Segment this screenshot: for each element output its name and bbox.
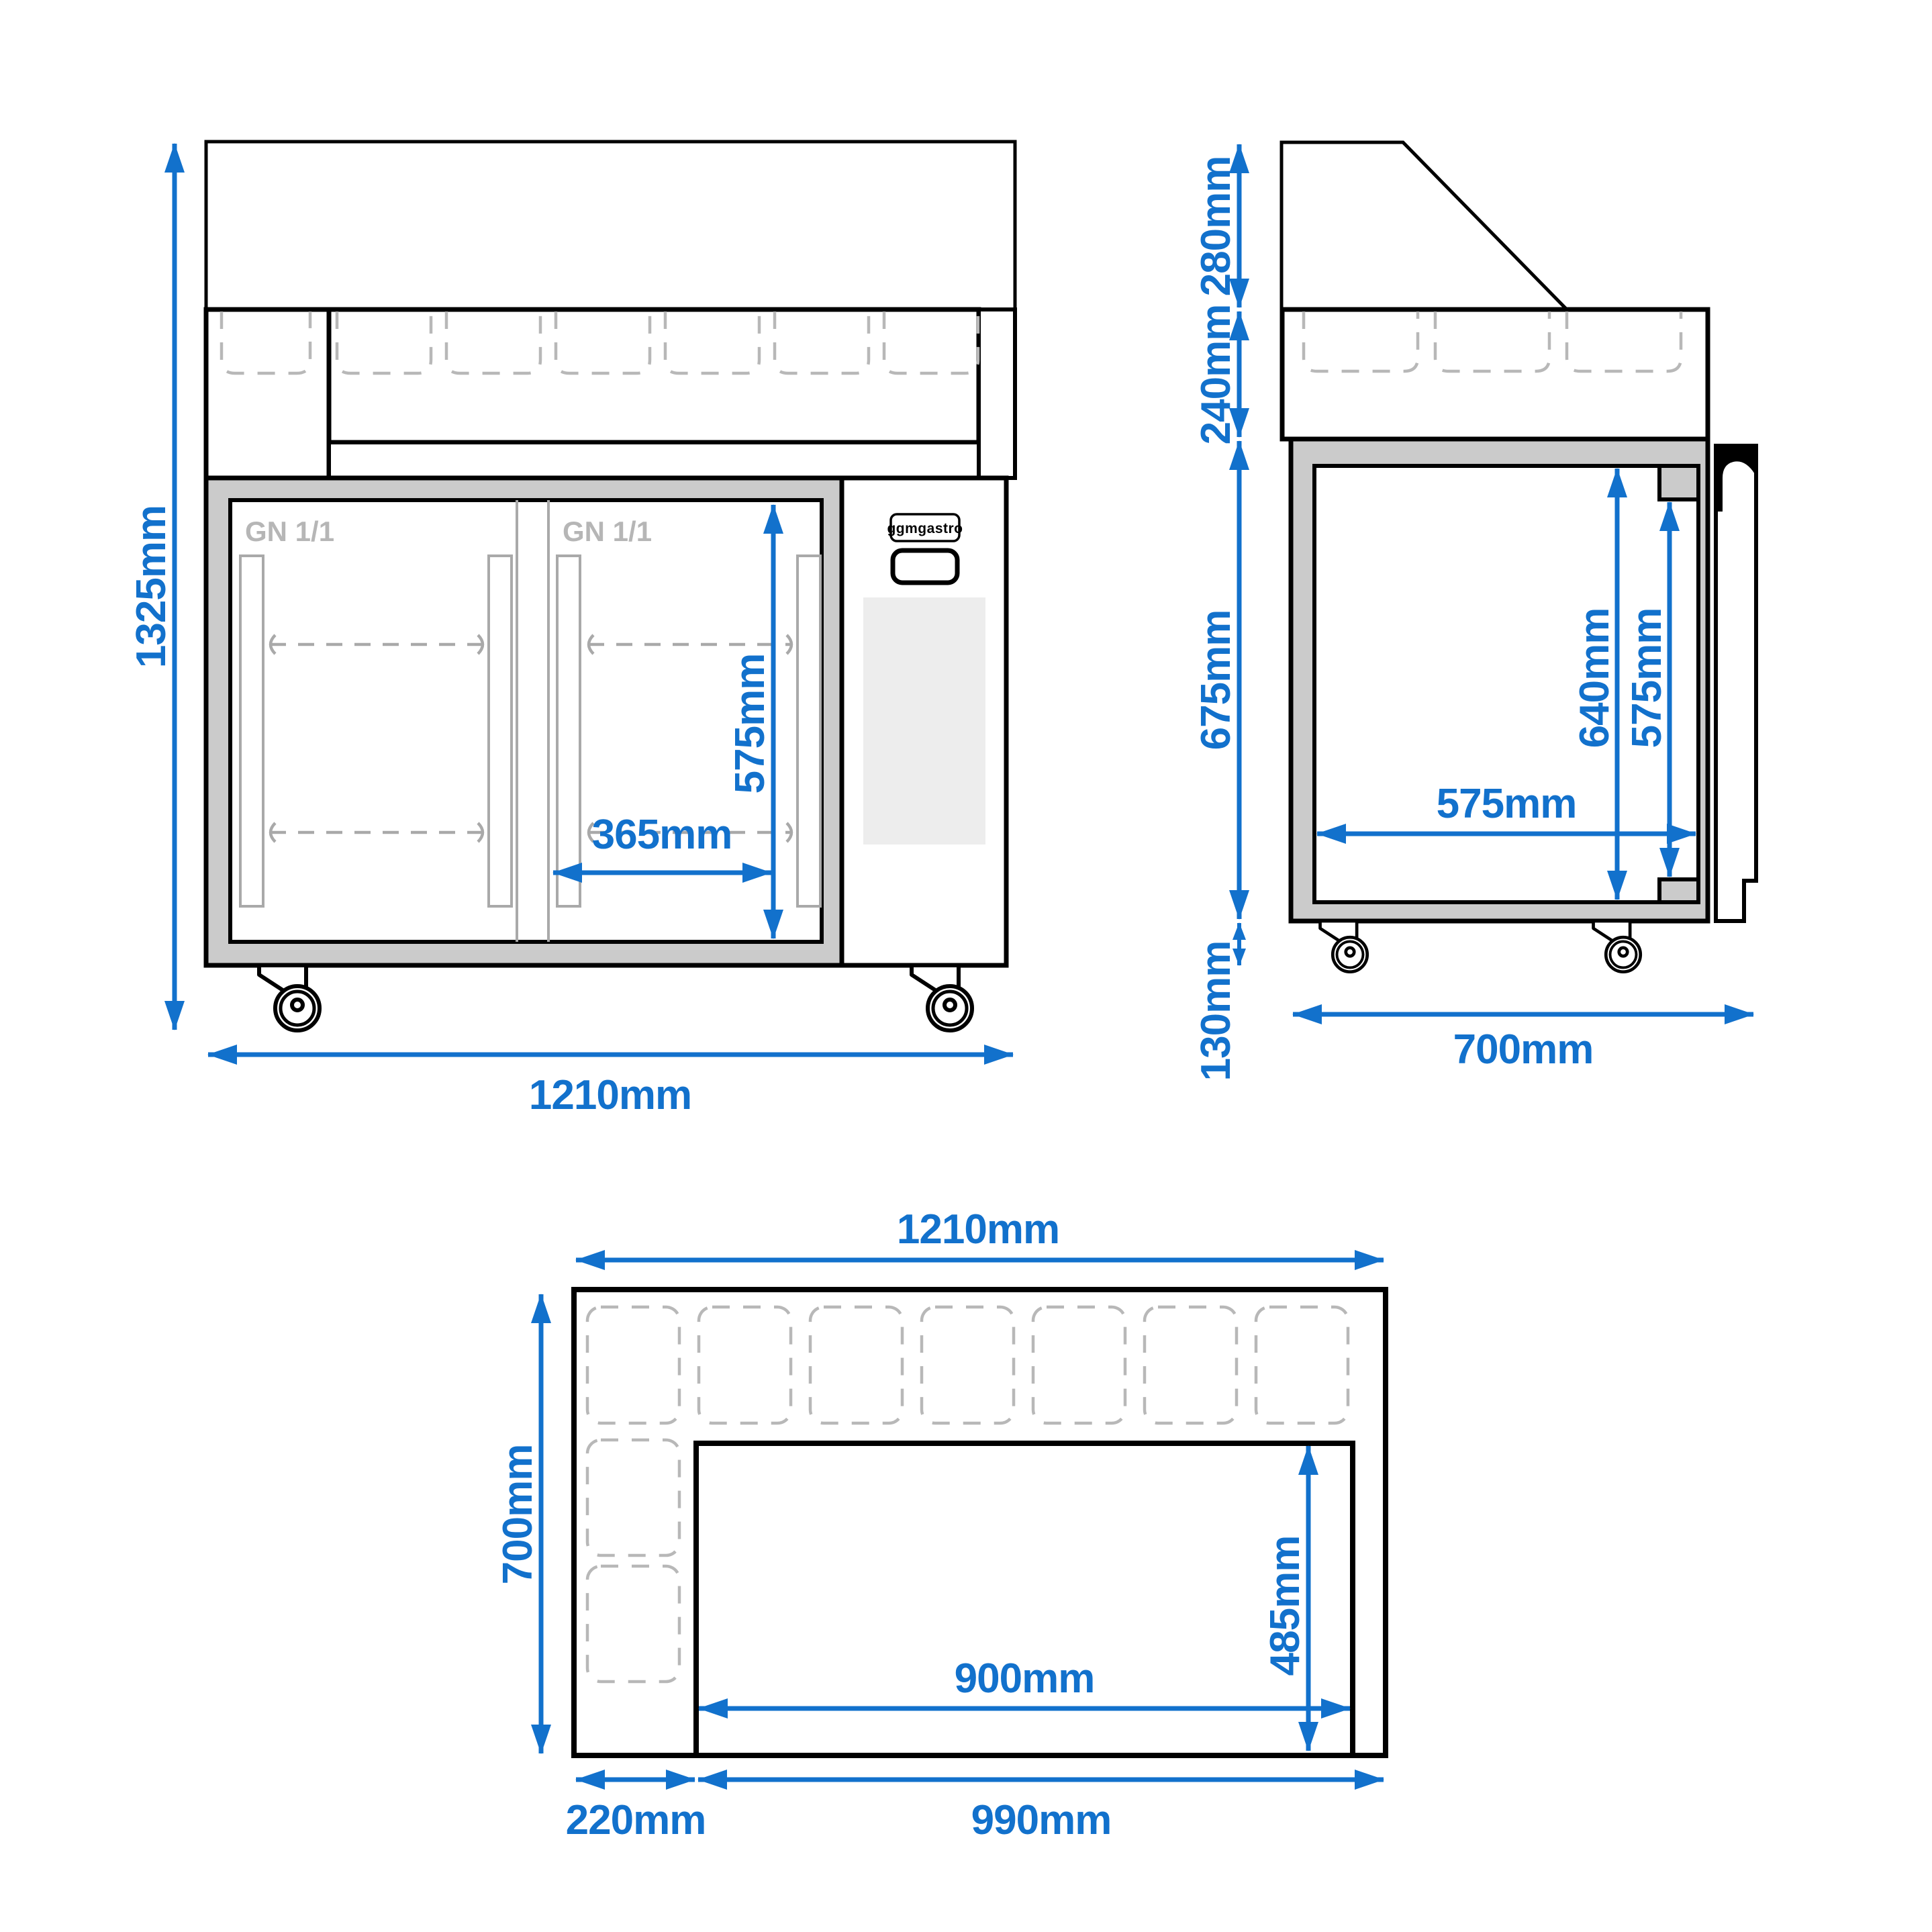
top-view: 1210mm 700mm 485mm 900mm 220mm 990mm	[495, 1206, 1386, 1843]
svg-text:700mm: 700mm	[1453, 1026, 1594, 1073]
side-gn-well-box	[1282, 309, 1708, 439]
side-ceiling-step	[1659, 466, 1698, 499]
ventilation-grille	[863, 597, 985, 844]
brand-logo-text: ggmgastro	[887, 521, 963, 536]
gn-size-label-left-door: GN 1/1	[245, 516, 334, 547]
svg-text:280mm: 280mm	[1193, 156, 1239, 297]
svg-text:1325mm: 1325mm	[128, 505, 175, 668]
svg-text:675mm: 675mm	[1193, 610, 1239, 751]
side-view: 280mm 240mm 675mm 130mm 700mm 640mm 575m…	[1193, 142, 1756, 1081]
front-glass-canopy	[206, 142, 1015, 309]
controller-display	[893, 550, 957, 583]
front-gn-well-left-box	[206, 309, 329, 478]
front-view: GN 1/1 GN 1/1 ggmgastro 1325mm 1210mm 57…	[128, 142, 1015, 1118]
dim-side-canopy-height: 280mm	[1193, 144, 1239, 307]
side-rear-caster	[1594, 921, 1641, 972]
side-front-caster	[1320, 921, 1367, 972]
drawing-canvas: GN 1/1 GN 1/1 ggmgastro 1325mm 1210mm 57…	[0, 0, 1932, 1932]
front-gn-well-right-box	[329, 309, 979, 442]
dim-front-overall-width: 1210mm	[208, 1055, 1013, 1118]
dim-top-overall-depth: 700mm	[495, 1294, 541, 1753]
front-right-caster	[912, 965, 972, 1030]
svg-text:220mm: 220mm	[566, 1797, 706, 1843]
svg-text:1210mm: 1210mm	[897, 1206, 1059, 1253]
dim-top-overall-width: 1210mm	[576, 1206, 1384, 1260]
side-glass-canopy	[1282, 142, 1567, 309]
technical-drawing: GN 1/1 GN 1/1 ggmgastro 1325mm 1210mm 57…	[0, 0, 1932, 1932]
dim-side-caster-height: 130mm	[1193, 923, 1239, 1081]
side-door-panel	[1716, 446, 1756, 921]
svg-text:130mm: 130mm	[1193, 941, 1239, 1081]
front-worktop-edge	[329, 442, 979, 478]
front-gn-well-section	[206, 309, 1015, 478]
dim-side-overall-depth: 700mm	[1293, 1014, 1753, 1073]
svg-text:575mm: 575mm	[1624, 608, 1670, 748]
svg-text:485mm: 485mm	[1262, 1536, 1308, 1676]
dim-front-overall-height: 1325mm	[128, 144, 175, 1030]
svg-text:240mm: 240mm	[1193, 305, 1239, 445]
side-floor-step	[1659, 879, 1698, 902]
front-right-post	[979, 309, 1015, 478]
svg-text:365mm: 365mm	[592, 812, 732, 858]
front-machine-compartment: ggmgastro	[842, 478, 1006, 965]
front-left-caster	[259, 965, 320, 1030]
svg-text:990mm: 990mm	[971, 1797, 1112, 1843]
dim-side-body-height: 675mm	[1193, 441, 1239, 919]
svg-text:700mm: 700mm	[495, 1445, 541, 1585]
dim-top-compressor-side-width: 220mm	[566, 1780, 706, 1843]
dim-side-gn-well-height: 240mm	[1193, 305, 1239, 445]
dim-top-cutout-side-width: 990mm	[698, 1780, 1384, 1843]
svg-text:575mm: 575mm	[727, 654, 773, 794]
svg-text:900mm: 900mm	[955, 1655, 1095, 1702]
gn-size-label-right-door: GN 1/1	[563, 516, 652, 547]
svg-text:575mm: 575mm	[1437, 781, 1577, 827]
svg-text:1210mm: 1210mm	[529, 1072, 691, 1118]
svg-text:640mm: 640mm	[1572, 608, 1618, 748]
